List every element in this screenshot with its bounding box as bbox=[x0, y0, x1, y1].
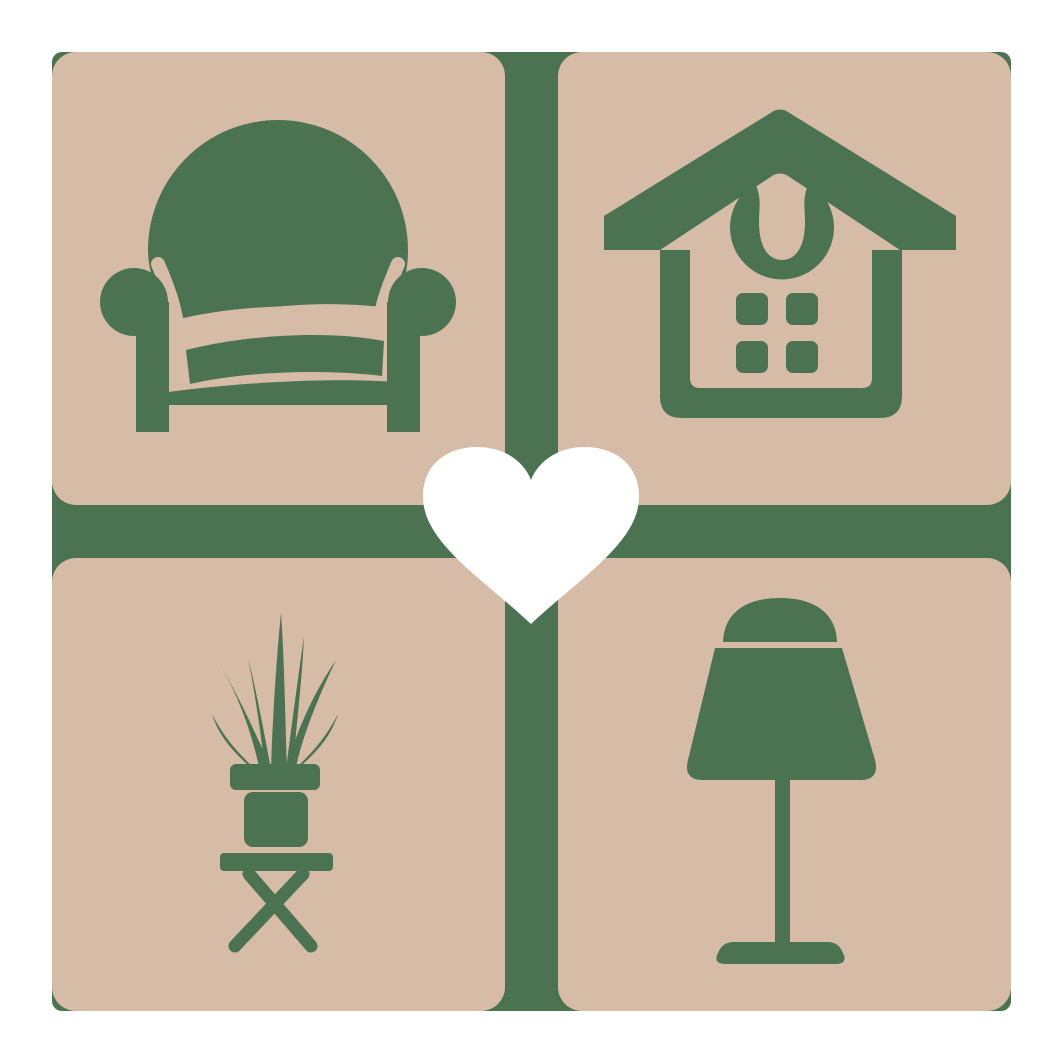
lamp-shapes bbox=[687, 598, 876, 964]
window-pane bbox=[786, 341, 818, 373]
heart-icon bbox=[411, 437, 651, 637]
window-pane bbox=[736, 341, 768, 373]
plant-leaves bbox=[212, 613, 338, 774]
house-arch-ornament bbox=[730, 183, 834, 279]
house-shapes bbox=[604, 110, 956, 419]
stool-leg bbox=[235, 874, 303, 946]
plant-shapes bbox=[212, 613, 338, 946]
armchair-cushion bbox=[186, 335, 384, 384]
pot-body bbox=[244, 792, 308, 847]
lamp-stem bbox=[775, 780, 790, 948]
window-pane bbox=[786, 293, 818, 325]
lamp-base bbox=[716, 942, 844, 964]
armchair-front-rail bbox=[154, 380, 406, 405]
stool-top bbox=[220, 853, 333, 871]
house-roof bbox=[604, 110, 956, 251]
lamp-cap bbox=[723, 598, 837, 642]
logo-canvas bbox=[0, 0, 1063, 1063]
armchair-right-leg bbox=[387, 302, 420, 432]
armchair-back bbox=[148, 120, 408, 320]
lamp-shade bbox=[687, 648, 876, 780]
armchair-left-leg bbox=[136, 302, 169, 432]
armchair-shapes bbox=[100, 120, 456, 432]
heart-shape bbox=[423, 447, 639, 624]
pot-rim bbox=[230, 764, 320, 790]
window-pane bbox=[736, 293, 768, 325]
house-window bbox=[736, 293, 818, 373]
